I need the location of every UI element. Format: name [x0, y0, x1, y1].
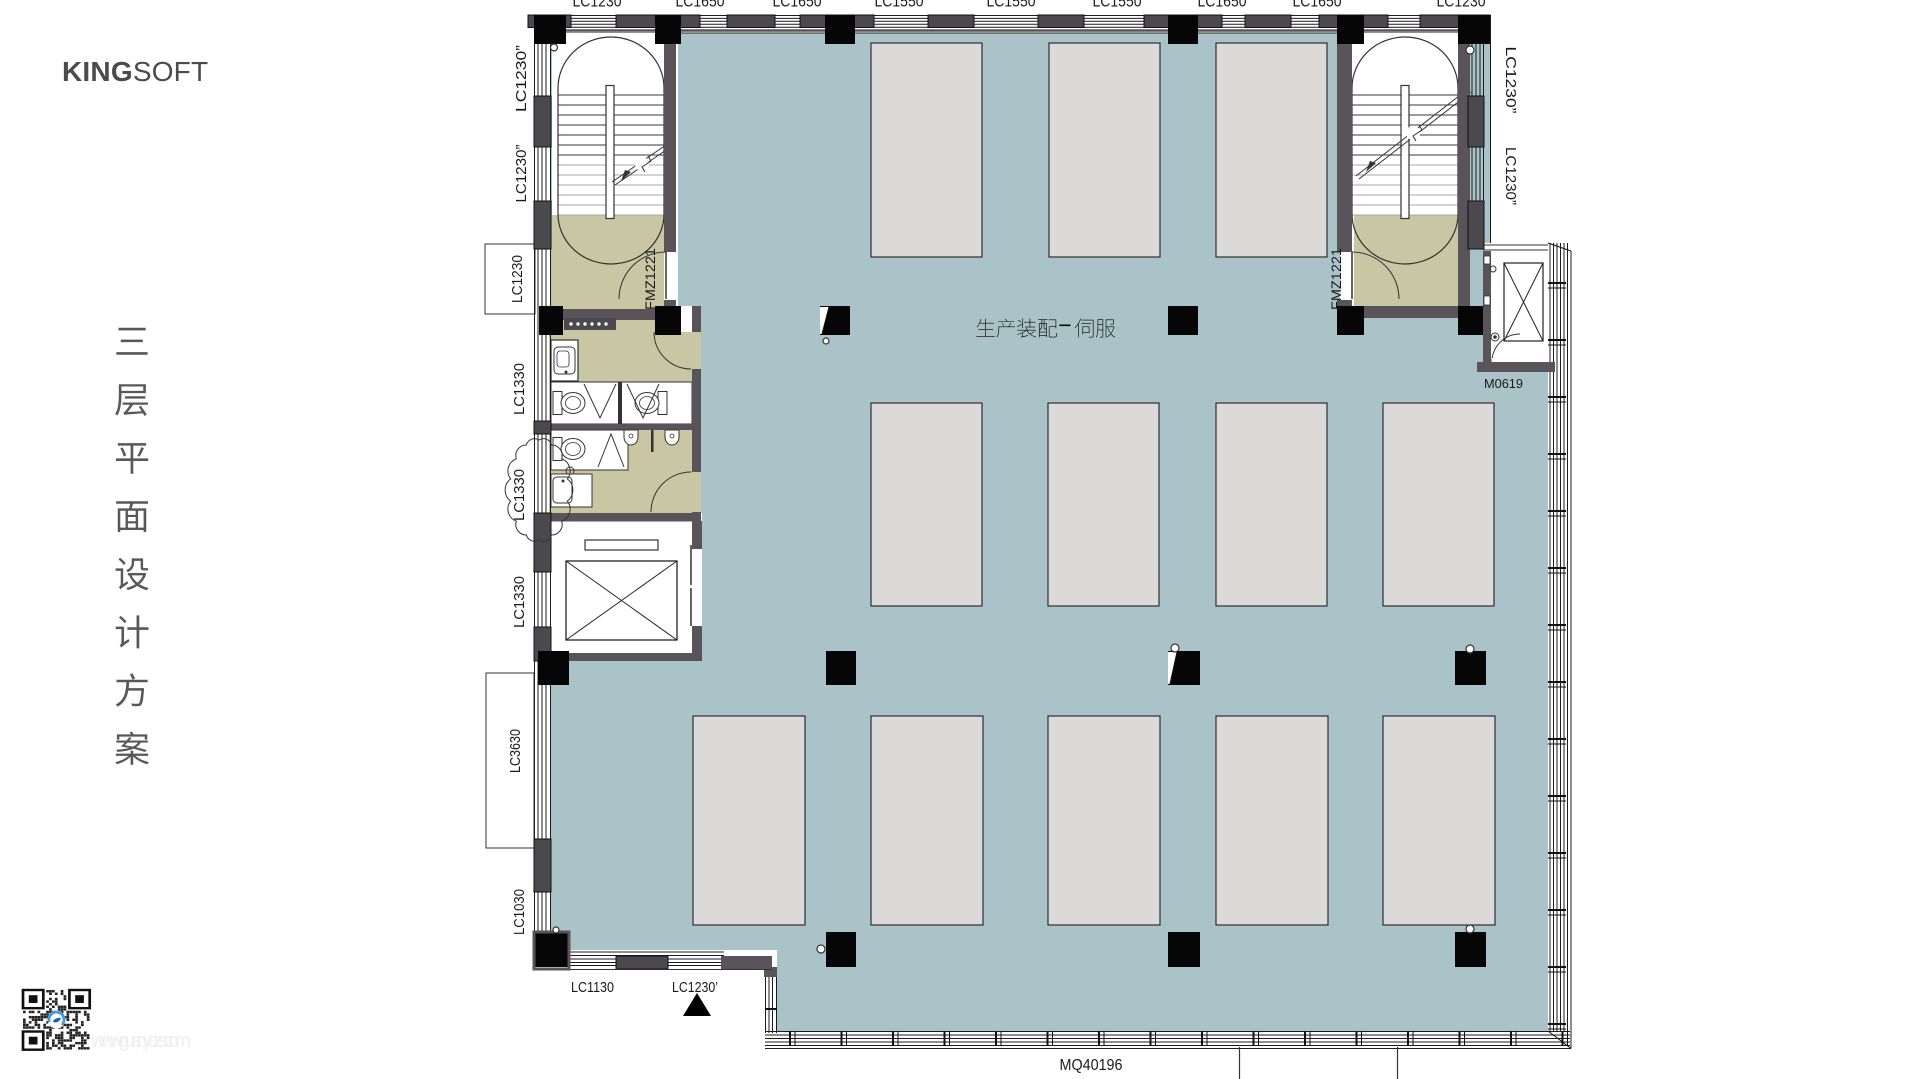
svg-text:LC1230: LC1230: [1437, 0, 1486, 11]
svg-text:FMZ1221: FMZ1221: [642, 248, 658, 310]
svg-text:FMZ1221: FMZ1221: [1328, 248, 1344, 310]
svg-text:LC1030: LC1030: [511, 889, 528, 935]
svg-text:LC1650: LC1650: [773, 0, 822, 11]
svg-text:LC1330: LC1330: [511, 363, 528, 415]
svg-text:MQ40196: MQ40196: [1060, 1057, 1123, 1074]
svg-text:LC1650: LC1650: [1198, 0, 1247, 11]
svg-text:LC1130: LC1130: [571, 979, 614, 996]
svg-text:LC1230’: LC1230’: [672, 979, 718, 996]
svg-text:LC1330: LC1330: [511, 576, 528, 628]
svg-text:LC1230: LC1230: [509, 255, 526, 303]
svg-text:LC1550: LC1550: [1093, 0, 1142, 11]
svg-text:LC1550: LC1550: [875, 0, 924, 11]
svg-text:www.guanyezs.com: www.guanyezs.com: [90, 1030, 191, 1052]
svg-text:LC1650: LC1650: [1293, 0, 1342, 11]
svg-text:LC1650: LC1650: [676, 0, 725, 11]
svg-text:LC1230”: LC1230”: [1502, 47, 1519, 114]
svg-text:LC1230”: LC1230”: [513, 145, 530, 203]
svg-text:M0619: M0619: [1484, 376, 1523, 391]
svg-text:LC1550: LC1550: [987, 0, 1036, 11]
svg-text:LC1230”: LC1230”: [513, 45, 530, 112]
svg-text:LC1230”: LC1230”: [1502, 147, 1519, 205]
svg-text:LC3630: LC3630: [507, 729, 524, 773]
svg-text:LC1230: LC1230: [573, 0, 622, 11]
svg-text:LC1330: LC1330: [511, 469, 528, 521]
